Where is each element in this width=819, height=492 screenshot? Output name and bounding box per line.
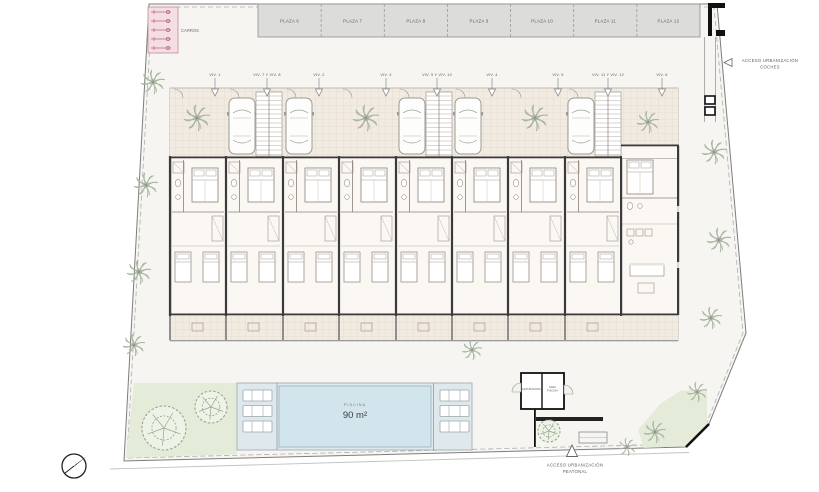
bed-pillow bbox=[205, 254, 217, 259]
bed-pillow bbox=[194, 170, 204, 176]
viv-label: VIV. 6 bbox=[656, 73, 667, 77]
gate-pillar bbox=[705, 96, 715, 104]
lounger-icon bbox=[243, 421, 272, 432]
sofa-icon bbox=[630, 265, 664, 276]
gate-wall bbox=[708, 3, 725, 8]
car-icon bbox=[566, 98, 596, 154]
terrace-divider bbox=[169, 316, 171, 340]
palm-trunk bbox=[647, 121, 650, 124]
unit-divider-wall bbox=[564, 156, 566, 316]
toilet-icon bbox=[231, 179, 236, 186]
viv-label: VIV. 5 bbox=[552, 73, 563, 77]
terrace-divider bbox=[507, 316, 509, 340]
bed-pillow bbox=[532, 170, 542, 176]
palm-trunk bbox=[195, 116, 198, 119]
toilet-icon bbox=[457, 179, 462, 186]
plaza-label: PLAZA 7 bbox=[343, 19, 362, 24]
lounger-icon bbox=[243, 406, 272, 417]
unit-divider-wall bbox=[225, 156, 227, 316]
terrace-divider bbox=[451, 316, 453, 340]
plaza-label: PLAZA 11 bbox=[595, 19, 617, 24]
room-wall bbox=[621, 145, 679, 147]
plaza-label: PLAZA 9 bbox=[469, 19, 488, 24]
pool-name-label: PISCINA bbox=[344, 403, 366, 407]
unit-divider-wall bbox=[620, 156, 622, 316]
room-wall bbox=[521, 160, 522, 212]
car-body bbox=[399, 98, 425, 154]
car-mirror bbox=[397, 112, 399, 116]
car-body bbox=[229, 98, 255, 154]
sink-icon bbox=[176, 195, 181, 200]
pool-house-room-left-label: DEPURADORA bbox=[522, 388, 541, 391]
bed-pillow bbox=[250, 170, 260, 176]
unit-divider-wall bbox=[338, 156, 340, 316]
palm-trunk bbox=[364, 116, 367, 119]
stairs-icon bbox=[256, 92, 282, 156]
stairs-icon bbox=[426, 92, 452, 156]
plaza-label: PLAZA 10 bbox=[531, 19, 553, 24]
pool-area-label: 90 m² bbox=[343, 410, 367, 421]
bed-pillow bbox=[601, 170, 611, 176]
bed-pillow bbox=[290, 254, 302, 259]
sink-icon bbox=[232, 195, 237, 200]
bed-pillow bbox=[515, 254, 527, 259]
sink-icon bbox=[289, 195, 294, 200]
room-wall bbox=[465, 160, 466, 212]
palm-trunk bbox=[626, 446, 628, 448]
north-arrow-icon bbox=[62, 454, 87, 478]
access-pedestrian-label-line2: PEATONAL bbox=[563, 469, 588, 474]
toilet-icon bbox=[344, 179, 349, 186]
tree-icon bbox=[538, 420, 560, 442]
access-pedestrian-label-line1: ACCESO URBANIZACIÓN bbox=[547, 463, 603, 468]
garden-wall bbox=[534, 409, 536, 447]
bed-pillow bbox=[589, 170, 599, 176]
room-wall bbox=[296, 160, 297, 212]
access-cars-label-line2: COCHES bbox=[760, 65, 780, 70]
toilet-icon bbox=[401, 179, 406, 186]
viv-label: VIV. 7 Y VIV. 8 bbox=[253, 73, 281, 77]
sink-icon bbox=[638, 204, 643, 209]
car-icon bbox=[397, 98, 427, 154]
carros-label: CARROS bbox=[181, 28, 199, 33]
bed-pillow bbox=[319, 170, 329, 176]
tree-icon bbox=[195, 391, 227, 423]
bed-pillow bbox=[233, 254, 245, 259]
lounger-icon bbox=[243, 390, 272, 401]
parking-plaza-row: PLAZA 6PLAZA 7PLAZA 8PLAZA 9PLAZA 10PLAZ… bbox=[258, 4, 700, 37]
car-body bbox=[286, 98, 312, 154]
toilet-icon bbox=[513, 179, 518, 186]
terrace-tiles bbox=[170, 316, 678, 341]
access-cars-arrow-icon bbox=[724, 59, 732, 67]
lounger-body bbox=[440, 390, 469, 401]
bed-pillow bbox=[177, 254, 189, 259]
bed-pillow bbox=[459, 254, 471, 259]
sink-icon bbox=[514, 195, 519, 200]
sink-icon bbox=[571, 195, 576, 200]
toilet-icon bbox=[570, 179, 575, 186]
room-wall bbox=[409, 160, 410, 212]
terrace-divider bbox=[282, 316, 284, 340]
tree-icon bbox=[142, 406, 186, 450]
sink-icon bbox=[458, 195, 463, 200]
building-wall-right bbox=[677, 146, 679, 206]
viv-label: VIV. 1 bbox=[209, 73, 220, 77]
terrace-divider bbox=[564, 316, 566, 340]
unit-divider-wall bbox=[282, 156, 284, 316]
terrace-divider bbox=[395, 316, 397, 340]
bed-pillow bbox=[431, 254, 443, 259]
bed-pillow bbox=[375, 170, 385, 176]
car-mirror bbox=[284, 112, 286, 116]
stairs-icon bbox=[595, 92, 621, 156]
car-body bbox=[455, 98, 481, 154]
palm-trunk bbox=[133, 344, 136, 347]
plaza-label: PLAZA 8 bbox=[406, 19, 425, 24]
bed-pillow bbox=[206, 170, 216, 176]
bed-pillow bbox=[420, 170, 430, 176]
building-wall-top bbox=[170, 157, 678, 159]
bed-pillow bbox=[600, 254, 612, 259]
sofa-back bbox=[630, 263, 664, 266]
plan-graphics: VIV. 1VIV. 7 Y VIV. 8VIV. 2VIV. 3VIV. 9 … bbox=[62, 3, 746, 478]
building-wall-right bbox=[677, 212, 679, 262]
palm-trunk bbox=[152, 81, 155, 84]
viv-label: VIV. 9 Y VIV. 10 bbox=[422, 73, 452, 77]
room-wall bbox=[239, 160, 240, 212]
lounger-body bbox=[243, 421, 272, 432]
toilet-icon bbox=[627, 203, 632, 210]
car-icon bbox=[284, 98, 314, 154]
palm-trunk bbox=[533, 116, 536, 119]
unit-divider-wall bbox=[507, 156, 509, 316]
bed-pillow bbox=[374, 254, 386, 259]
car-mirror bbox=[453, 112, 455, 116]
palm-trunk bbox=[145, 184, 148, 187]
building-wall-bottom bbox=[170, 314, 678, 316]
car-mirror bbox=[312, 112, 314, 116]
bed-pillow bbox=[572, 254, 584, 259]
car-mirror bbox=[481, 112, 483, 116]
plaza-label: PLAZA 6 bbox=[280, 19, 299, 24]
viv-label: VIV. 11 Y VIV. 12 bbox=[592, 73, 624, 77]
toilet-icon bbox=[175, 179, 180, 186]
carros-bay bbox=[148, 7, 178, 53]
bed-pillow bbox=[262, 170, 272, 176]
palm-trunk bbox=[713, 151, 716, 154]
bed-pillow bbox=[488, 170, 498, 176]
bed-pillow bbox=[318, 254, 330, 259]
floor-plan-svg: VIV. 1VIV. 7 Y VIV. 8VIV. 2VIV. 3VIV. 9 … bbox=[0, 0, 819, 492]
bed-pillow bbox=[629, 162, 639, 168]
gate-wall bbox=[716, 30, 725, 36]
bed-pillow bbox=[363, 170, 373, 176]
unit-divider-wall bbox=[395, 156, 397, 316]
car-mirror bbox=[227, 112, 229, 116]
floor-plan-page: VIV. 1VIV. 7 Y VIV. 8VIV. 2VIV. 3VIV. 9 … bbox=[0, 0, 819, 492]
car-icon bbox=[453, 98, 483, 154]
viv-label: VIV. 4 bbox=[486, 73, 497, 77]
car-icon bbox=[227, 98, 257, 154]
bed-pillow bbox=[261, 254, 273, 259]
car-mirror bbox=[566, 112, 568, 116]
unit-divider-wall bbox=[451, 156, 453, 316]
bed-pillow bbox=[544, 170, 554, 176]
bed-pillow bbox=[307, 170, 317, 176]
sink-icon bbox=[402, 195, 407, 200]
viv-label: VIV. 2 bbox=[313, 73, 324, 77]
room-floor bbox=[622, 146, 677, 158]
lounger-body bbox=[440, 421, 469, 432]
palm-trunk bbox=[710, 317, 713, 320]
lounger-icon bbox=[440, 390, 469, 401]
lounger-body bbox=[243, 390, 272, 401]
gate-pillar bbox=[705, 107, 715, 115]
terrace-divider bbox=[225, 316, 227, 340]
palm-trunk bbox=[654, 431, 657, 434]
palm-trunk bbox=[471, 349, 473, 351]
lounger-body bbox=[440, 406, 469, 417]
palm-trunk bbox=[696, 391, 698, 393]
room-wall bbox=[352, 160, 353, 212]
sink-icon bbox=[345, 195, 350, 200]
room-wall bbox=[578, 160, 579, 212]
bed-pillow bbox=[641, 162, 651, 168]
bed-pillow bbox=[543, 254, 555, 259]
lounger-icon bbox=[440, 406, 469, 417]
palm-trunk bbox=[138, 271, 141, 274]
unit-divider-wall bbox=[169, 156, 171, 316]
access-cars-label-line1: ACCESO URBANIZACIÓN bbox=[742, 58, 798, 63]
bed-pillow bbox=[476, 170, 486, 176]
bed-pillow bbox=[403, 254, 415, 259]
pool-house-room-right-label-line2: PISCINA bbox=[547, 390, 558, 393]
terrace-divider bbox=[338, 316, 340, 340]
bed-pillow bbox=[346, 254, 358, 259]
plaza-label: PLAZA 12 bbox=[658, 19, 680, 24]
toilet-icon bbox=[288, 179, 293, 186]
palm-trunk bbox=[718, 239, 721, 242]
lounger-body bbox=[243, 406, 272, 417]
bed-pillow bbox=[432, 170, 442, 176]
bed-pillow bbox=[487, 254, 499, 259]
lounger-icon bbox=[440, 421, 469, 432]
car-body bbox=[568, 98, 594, 154]
viv-label: VIV. 3 bbox=[380, 73, 391, 77]
building-wall-right bbox=[677, 268, 679, 315]
room-wall bbox=[183, 160, 184, 212]
